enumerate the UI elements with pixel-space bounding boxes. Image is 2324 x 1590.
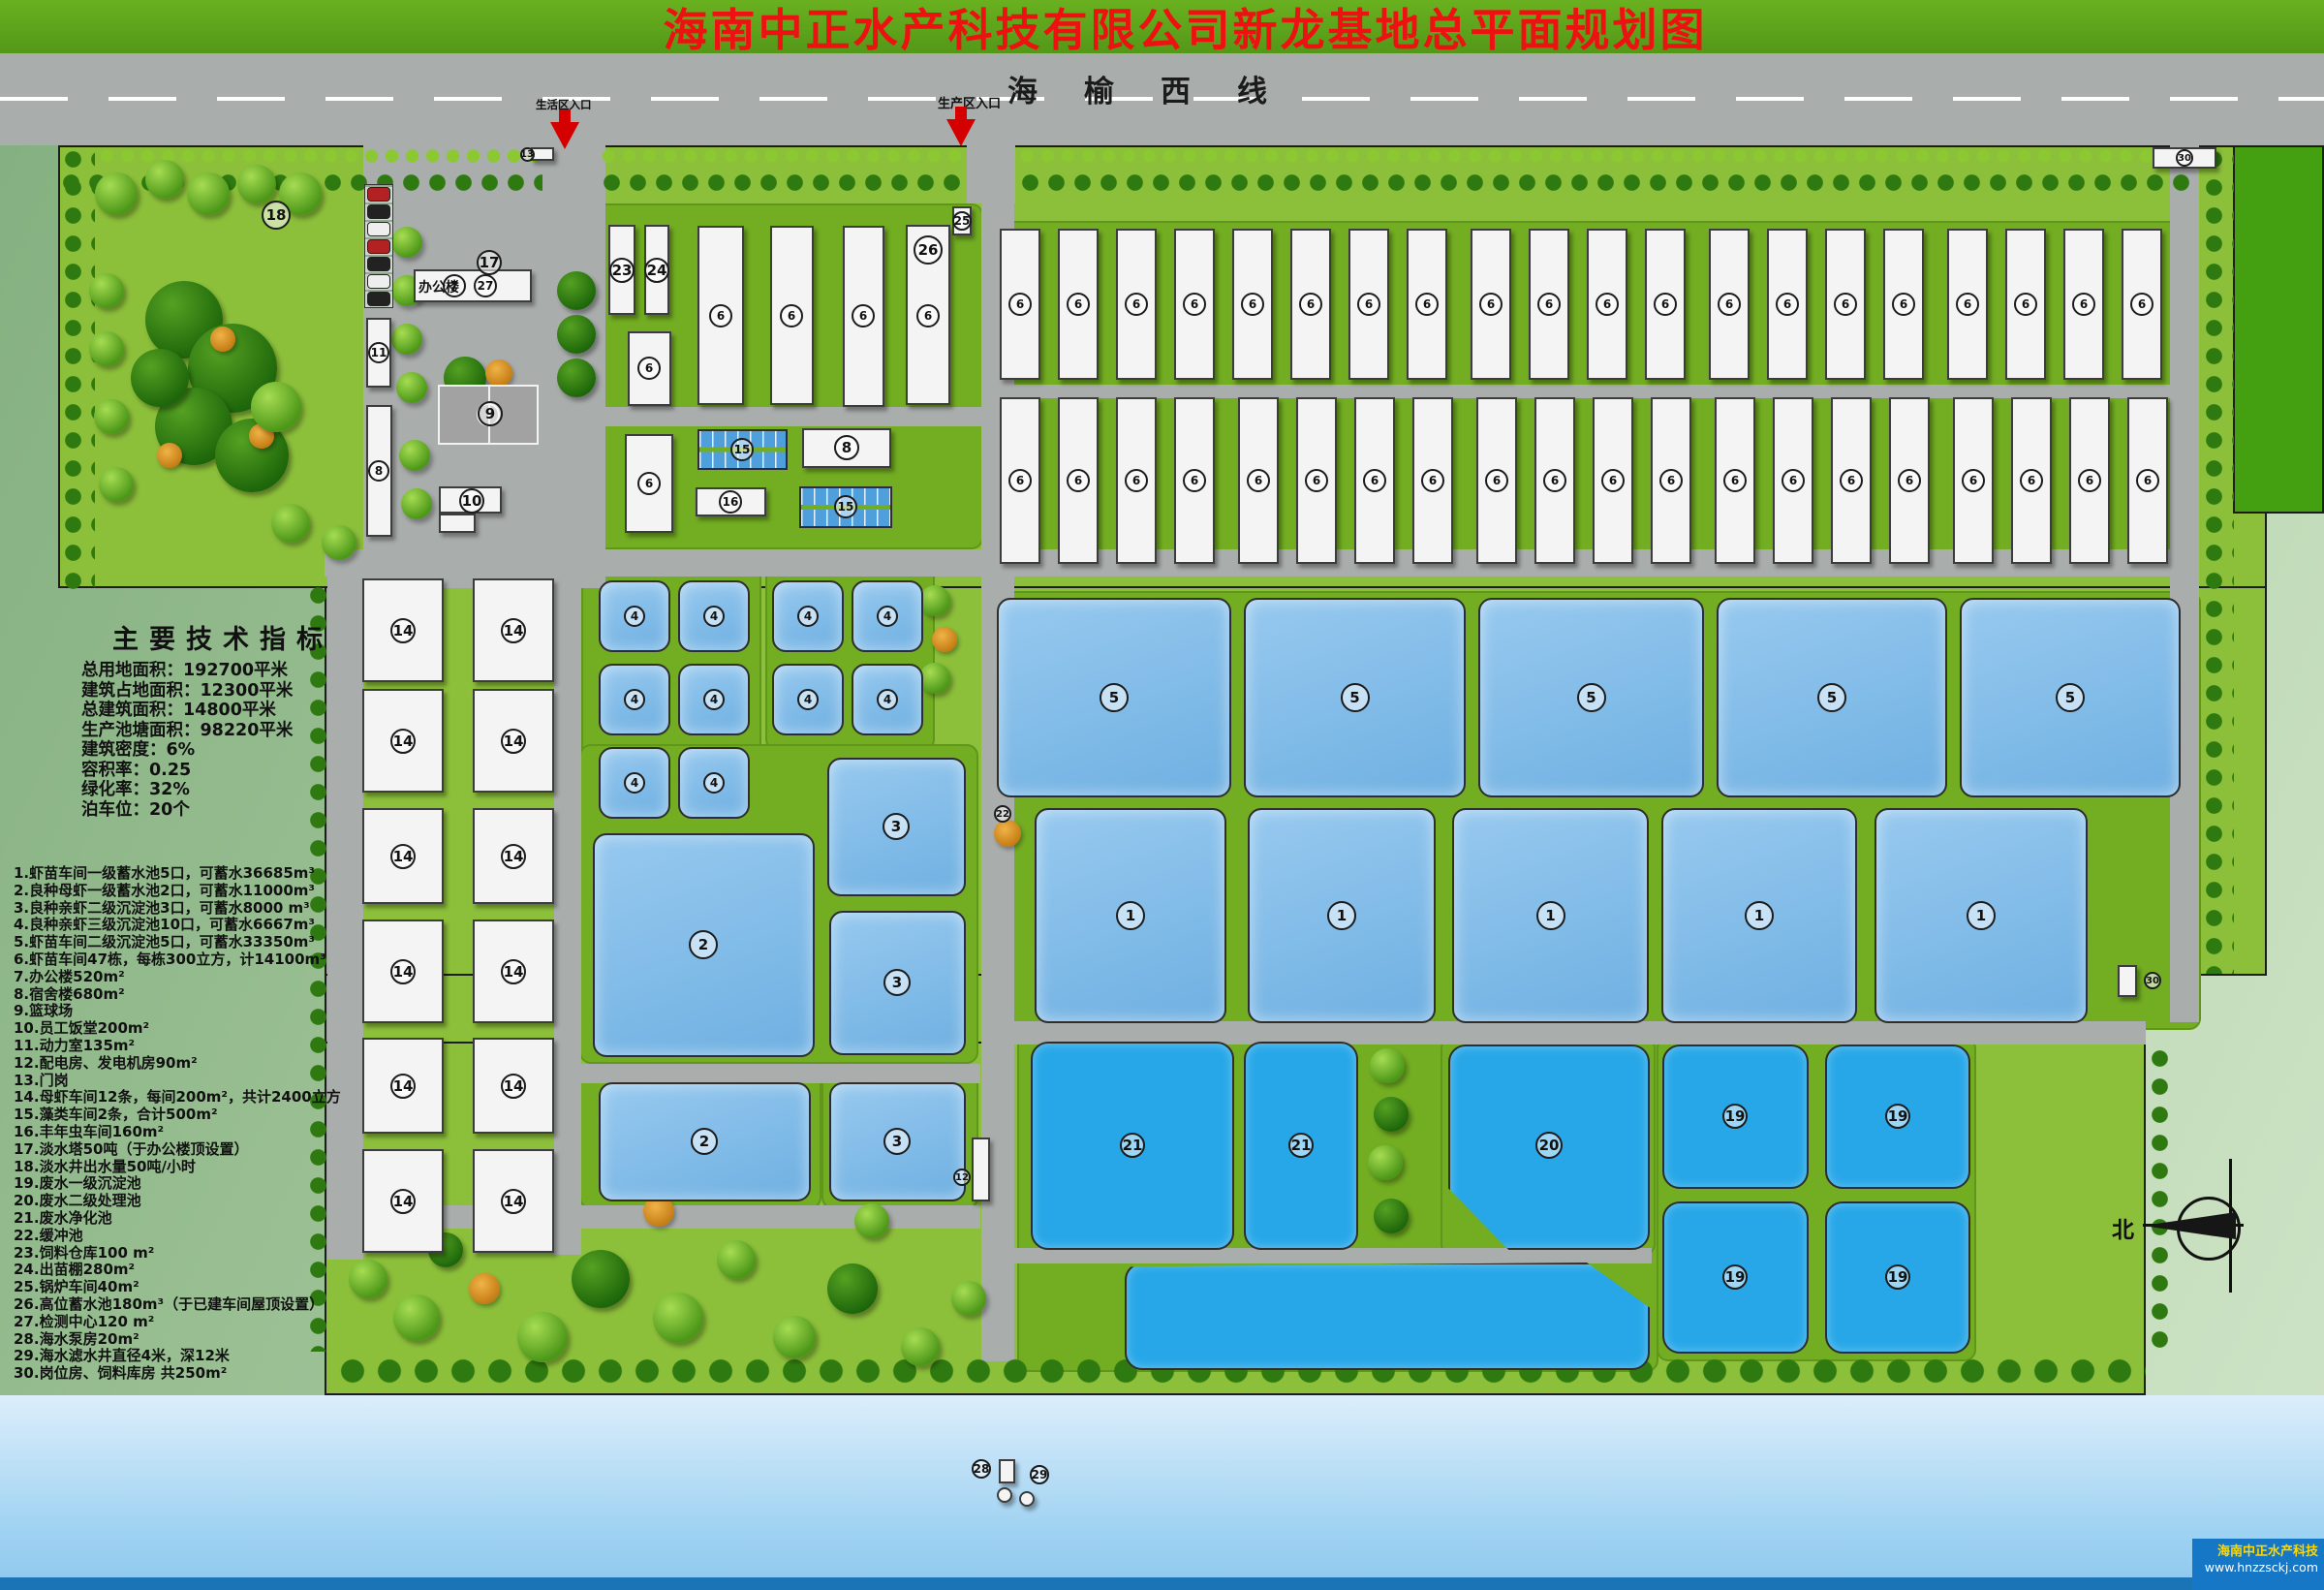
site-plan-canvas: 海南中正水产科技有限公司新龙基地总平面规划图 海榆西线 生活区入口 生产区入口 … [0,0,2324,1590]
shed-number-label: 6 [1008,293,1032,316]
road-segment [981,1042,1014,1361]
circled-number-label: 6 [637,472,661,495]
circled-number-label: 29 [1030,1465,1049,1484]
pond-number-label: 4 [877,689,898,710]
legend-item: 14.母虾车间12条，每间200m²，共计2400立方 [14,1089,341,1107]
legend-item: 2.良种母虾一级蓄水池2口，可蓄水11000m³ [14,883,341,900]
legend-item: 15.藻类车间2条，合计500m² [14,1107,341,1124]
pond-number-label: 4 [797,606,819,627]
pond-number-label: 1 [1745,901,1774,930]
building-number-label: 14 [501,618,526,643]
circled-number-label: 6 [780,304,803,327]
tree [653,1293,703,1343]
shed-number-label: 6 [1892,293,1915,316]
tree [95,172,138,215]
watermark-url: www.hnzzsckj.com [2192,1560,2318,1574]
tree [399,440,430,471]
circled-number-label: 8 [368,460,389,482]
tree [157,443,182,468]
building-number-label: 14 [390,1074,416,1099]
tree [1370,1048,1405,1083]
circled-number-label: 2 [691,1128,718,1155]
circled-number-label: 27 [474,274,497,297]
tree [557,315,596,354]
sea-area: 南中国海 [0,1395,2324,1590]
legend-item: 29.海水滤水井直径4米，深12米 [14,1348,341,1365]
tree [89,331,124,366]
shed-number-label: 6 [1723,469,1747,492]
tree [1368,1145,1403,1180]
legend-item: 20.废水二级处理池 [14,1193,341,1210]
legend-item: 7.办公楼520m² [14,969,341,986]
watermark-company: 海南中正水产科技 [2192,1544,2318,1560]
shed-number-label: 6 [1363,469,1386,492]
legend-item: 27.检测中心120 m² [14,1314,341,1331]
circled-number-label: 6 [916,304,940,327]
gatehouse [531,147,554,161]
indicator-line: 生产池塘面积：98220平米 [81,721,293,741]
tree-hedge [1017,145,2199,171]
circled-number-label: 8 [834,435,859,460]
shed-number-label: 6 [1776,293,1799,316]
entrance-arrow-life-head [550,122,579,149]
parked-car [367,239,390,254]
legend-item: 28.海水泵房20m² [14,1331,341,1349]
shed-number-label: 6 [2136,469,2159,492]
tree-hedge [1017,169,2199,200]
legend-item: 10.员工饭堂200m² [14,1020,341,1038]
shed-number-label: 6 [1840,469,1863,492]
circled-number-label: 17 [477,250,502,275]
pond-number-label: 1 [1116,901,1145,930]
legend-item: 26.高位蓄水池180m³（于已建车间屋顶设置） [14,1296,341,1314]
pond-number-label: 4 [703,606,725,627]
building-number-label: 14 [390,844,416,869]
pond-number-label: 4 [877,606,898,627]
building-number-label: 14 [390,1189,416,1214]
circled-number-label: 10 [459,488,484,514]
tree-hedge [599,169,964,200]
tree [932,627,957,652]
watermark: 海南中正水产科技 www.hnzzsckj.com [2192,1539,2324,1590]
power-distribution [972,1138,990,1201]
tree [572,1250,630,1308]
legend-item: 25.锅炉车间40m² [14,1279,341,1296]
shed-number-label: 6 [1834,293,1857,316]
shed-number-label: 6 [1125,293,1148,316]
tree [951,1281,986,1316]
road-segment [2170,145,2199,1022]
shed-number-label: 6 [1067,293,1090,316]
pond-number-label: 5 [1100,683,1129,712]
pond-number-label: 1 [1536,901,1565,930]
tree [145,160,184,199]
shed-number-label: 6 [1299,293,1322,316]
shed-number-label: 6 [2130,293,2154,316]
tree [237,165,276,203]
tree [187,172,230,215]
circled-number-label: 13 [520,147,535,162]
building-number-label: 14 [390,959,416,984]
shed-number-label: 6 [1543,469,1566,492]
shed-number-label: 6 [1654,293,1677,316]
indicator-line: 绿化率：32% [81,780,293,800]
legend-item: 22.缓冲池 [14,1228,341,1245]
tree [994,820,1021,847]
tree [251,382,301,432]
shed-number-label: 6 [1125,469,1148,492]
canteen-wing [439,514,476,533]
sea-bottom-strip [0,1577,2324,1590]
circled-number-label: 23 [609,258,635,283]
tree-hedge [599,145,964,171]
tree-hedge [2147,1044,2172,1359]
parked-car [367,274,390,289]
shed-number-label: 6 [1596,293,1619,316]
parked-car [367,292,390,306]
tree-hedge [60,145,95,589]
tree-hedge [2201,145,2234,974]
road-segment [554,577,581,1255]
circled-number-label: 21 [1288,1133,1314,1158]
circled-number-label: 15 [730,438,754,461]
shed-number-label: 6 [1008,469,1032,492]
tree [557,271,596,310]
circled-number-label: 19 [1885,1264,1910,1290]
building-number-label: 14 [390,618,416,643]
indicator-line: 总建筑面积：14800平米 [81,701,293,721]
circled-number-label: 15 [834,495,857,518]
circled-number-label: 30 [2144,972,2161,989]
shed-number-label: 6 [1479,293,1503,316]
road-segment [554,1064,980,1083]
sea-filter-well [997,1487,1012,1503]
shed-number-label: 6 [1956,293,1979,316]
circled-number-label: 19 [1885,1104,1910,1129]
buffer-pond-22 [1125,1263,1650,1370]
shed-number-label: 6 [2072,293,2095,316]
pond-number-label: 5 [1817,683,1846,712]
tree [1374,1199,1409,1233]
tree [854,1203,889,1238]
sea-pump-house [999,1459,1015,1483]
circled-number-label: 20 [1535,1132,1563,1159]
entrance-arrow-life [559,109,571,123]
tree [393,1294,440,1341]
legend-list: 1.虾苗车间一级蓄水池5口，可蓄水36685m³2.良种母虾一级蓄水池2口，可蓄… [14,865,341,1383]
shed-number-label: 6 [1962,469,1985,492]
legend-item: 19.废水一级沉淀池 [14,1175,341,1193]
legend-item: 17.淡水塔50吨（于办公楼顶设置） [14,1141,341,1159]
legend-item: 24.出苗棚280m² [14,1262,341,1279]
shed-number-label: 6 [1247,469,1270,492]
tree [89,273,124,308]
legend-item: 8.宿舍楼680m² [14,986,341,1004]
circled-number-label: 3 [883,813,910,840]
tree [919,585,950,616]
building-number-label: 14 [501,959,526,984]
indicator-line: 泊车位：20个 [81,800,293,821]
shed-number-label: 6 [1898,469,1921,492]
circled-number-label: 22 [994,805,1011,823]
circled-number-label: 12 [953,1169,971,1186]
tree [1374,1097,1409,1132]
circled-number-label: 6 [852,304,875,327]
parked-car [367,187,390,202]
circled-number-label: 11 [368,342,389,363]
parked-car [367,204,390,219]
tree [773,1316,816,1358]
legend-item: 30.岗位房、饲料库房 共250m² [14,1365,341,1383]
shed-number-label: 6 [1421,469,1444,492]
indicator-line: 容积率：0.25 [81,761,293,781]
legend-item: 16.丰年虫车间160m² [14,1124,341,1141]
building-number-label: 14 [501,729,526,754]
legend-item: 1.虾苗车间一级蓄水池5口，可蓄水36685m³ [14,865,341,883]
tree [391,324,422,355]
tree [322,525,356,560]
legend-item: 23.饲料仓库100 m² [14,1245,341,1263]
shed-number-label: 6 [1305,469,1328,492]
entrance-label-production: 生产区入口 [938,93,1001,111]
compass-arrow [2143,1212,2236,1239]
shed-number-label: 6 [1357,293,1380,316]
indicator-line: 建筑密度：6% [81,740,293,761]
legend-item: 6.虾苗车间47栋，每栋300立方，计14100m³ [14,951,341,969]
pond-number-label: 5 [2056,683,2085,712]
tree [210,327,235,352]
tree [827,1263,878,1314]
legend-item: 12.配电房、发电机房90m² [14,1055,341,1073]
shed-number-label: 6 [1601,469,1625,492]
tree [919,663,950,694]
tree [94,399,129,434]
title-banner: 海南中正水产科技有限公司新龙基地总平面规划图 [0,0,2324,53]
shed-number-label: 6 [1782,469,1805,492]
guard-feed-store [2118,965,2137,997]
shed-number-label: 6 [1183,293,1206,316]
pond-number-label: 4 [624,772,645,794]
shed-number-label: 6 [1067,469,1090,492]
sea-filter-well [1019,1491,1035,1507]
highway: 海榆西线 [0,53,2324,145]
building-number-label: 14 [501,844,526,869]
tree [517,1312,568,1362]
pond-number-label: 1 [1967,901,1996,930]
circled-number-label: 21 [1120,1133,1145,1158]
shed-number-label: 6 [2014,293,2037,316]
circled-number-label: 26 [914,235,943,265]
shed-number-label: 6 [1659,469,1683,492]
legend-item: 11.动力室135m² [14,1038,341,1055]
circled-number-label: 3 [883,969,911,996]
legend-item: 3.良种亲虾二级沉淀池3口，可蓄水8000 m³ [14,900,341,918]
corner-green-field [2233,145,2324,514]
circled-number-label: 24 [644,258,669,283]
entrance-arrow-production [955,107,967,120]
tree [717,1240,756,1279]
parked-car [367,257,390,271]
pond-number-label: 4 [703,772,725,794]
circled-number-label: 3 [883,1128,911,1155]
road-name: 海榆西线 [1007,67,1314,110]
shed-number-label: 6 [2078,469,2101,492]
shed-number-label: 6 [2020,469,2043,492]
circled-number-label: 25 [952,211,972,231]
circled-number-label: 18 [262,201,291,230]
entrance-arrow-production-head [946,119,976,146]
shed-number-label: 6 [1183,469,1206,492]
office-building-label: 办公楼 [418,277,459,296]
north-label: 北 [2112,1211,2134,1244]
pond-number-label: 5 [1341,683,1370,712]
pond-number-label: 5 [1577,683,1606,712]
pond-number-label: 4 [624,606,645,627]
shed-number-label: 6 [1241,293,1264,316]
legend-item: 5.虾苗车间二级沉淀池5口，可蓄水33350m³ [14,934,341,951]
circled-number-label: 19 [1722,1264,1748,1290]
building-number-label: 14 [501,1189,526,1214]
pond-number-label: 4 [797,689,819,710]
shed-number-label: 6 [1537,293,1561,316]
tree [557,359,596,397]
circled-number-label: 30 [2176,149,2193,167]
road-segment [993,385,2199,398]
indicators-title: 主要技术指标 [112,618,333,656]
circled-number-label: 16 [719,490,742,514]
indicator-line: 建筑占地面积：12300平米 [81,681,293,701]
legend-item: 18.淡水井出水量50吨/小时 [14,1159,341,1176]
shed-number-label: 6 [1415,293,1439,316]
shed-number-label: 6 [1718,293,1741,316]
pond-number-label: 4 [624,689,645,710]
parked-car [367,222,390,236]
indicators-list: 总用地面积：192700平米建筑占地面积：12300平米总建筑面积：14800平… [81,661,293,820]
tree [396,372,427,403]
circled-number-label: 28 [972,1459,991,1479]
legend-item: 13.门岗 [14,1073,341,1090]
road-segment [1012,1248,1652,1263]
tree [131,349,189,407]
tree [901,1327,940,1366]
tree [349,1260,387,1298]
shed-number-label: 6 [1485,469,1508,492]
building-number-label: 14 [390,729,416,754]
tree [271,504,310,543]
pond-number-label: 4 [703,689,725,710]
tree [485,359,512,387]
road-segment [594,407,983,426]
legend-item: 21.废水净化池 [14,1210,341,1228]
pond-number-label: 1 [1327,901,1356,930]
tree [99,467,134,502]
building-number-label: 14 [501,1074,526,1099]
tree [469,1273,500,1304]
legend-item: 4.良种亲虾三级沉淀池10口，可蓄水6667m³ [14,917,341,934]
indicator-line: 总用地面积：192700平米 [81,661,293,681]
legend-item: 9.篮球场 [14,1003,341,1020]
circled-number-label: 2 [689,930,718,959]
circled-number-label: 19 [1722,1104,1748,1129]
tree [391,227,422,258]
circled-number-label: 6 [709,304,732,327]
circled-number-label: 6 [637,357,661,380]
circled-number-label: 9 [478,401,503,426]
page-title: 海南中正水产科技有限公司新龙基地总平面规划图 [663,0,1707,59]
tree [401,488,432,519]
